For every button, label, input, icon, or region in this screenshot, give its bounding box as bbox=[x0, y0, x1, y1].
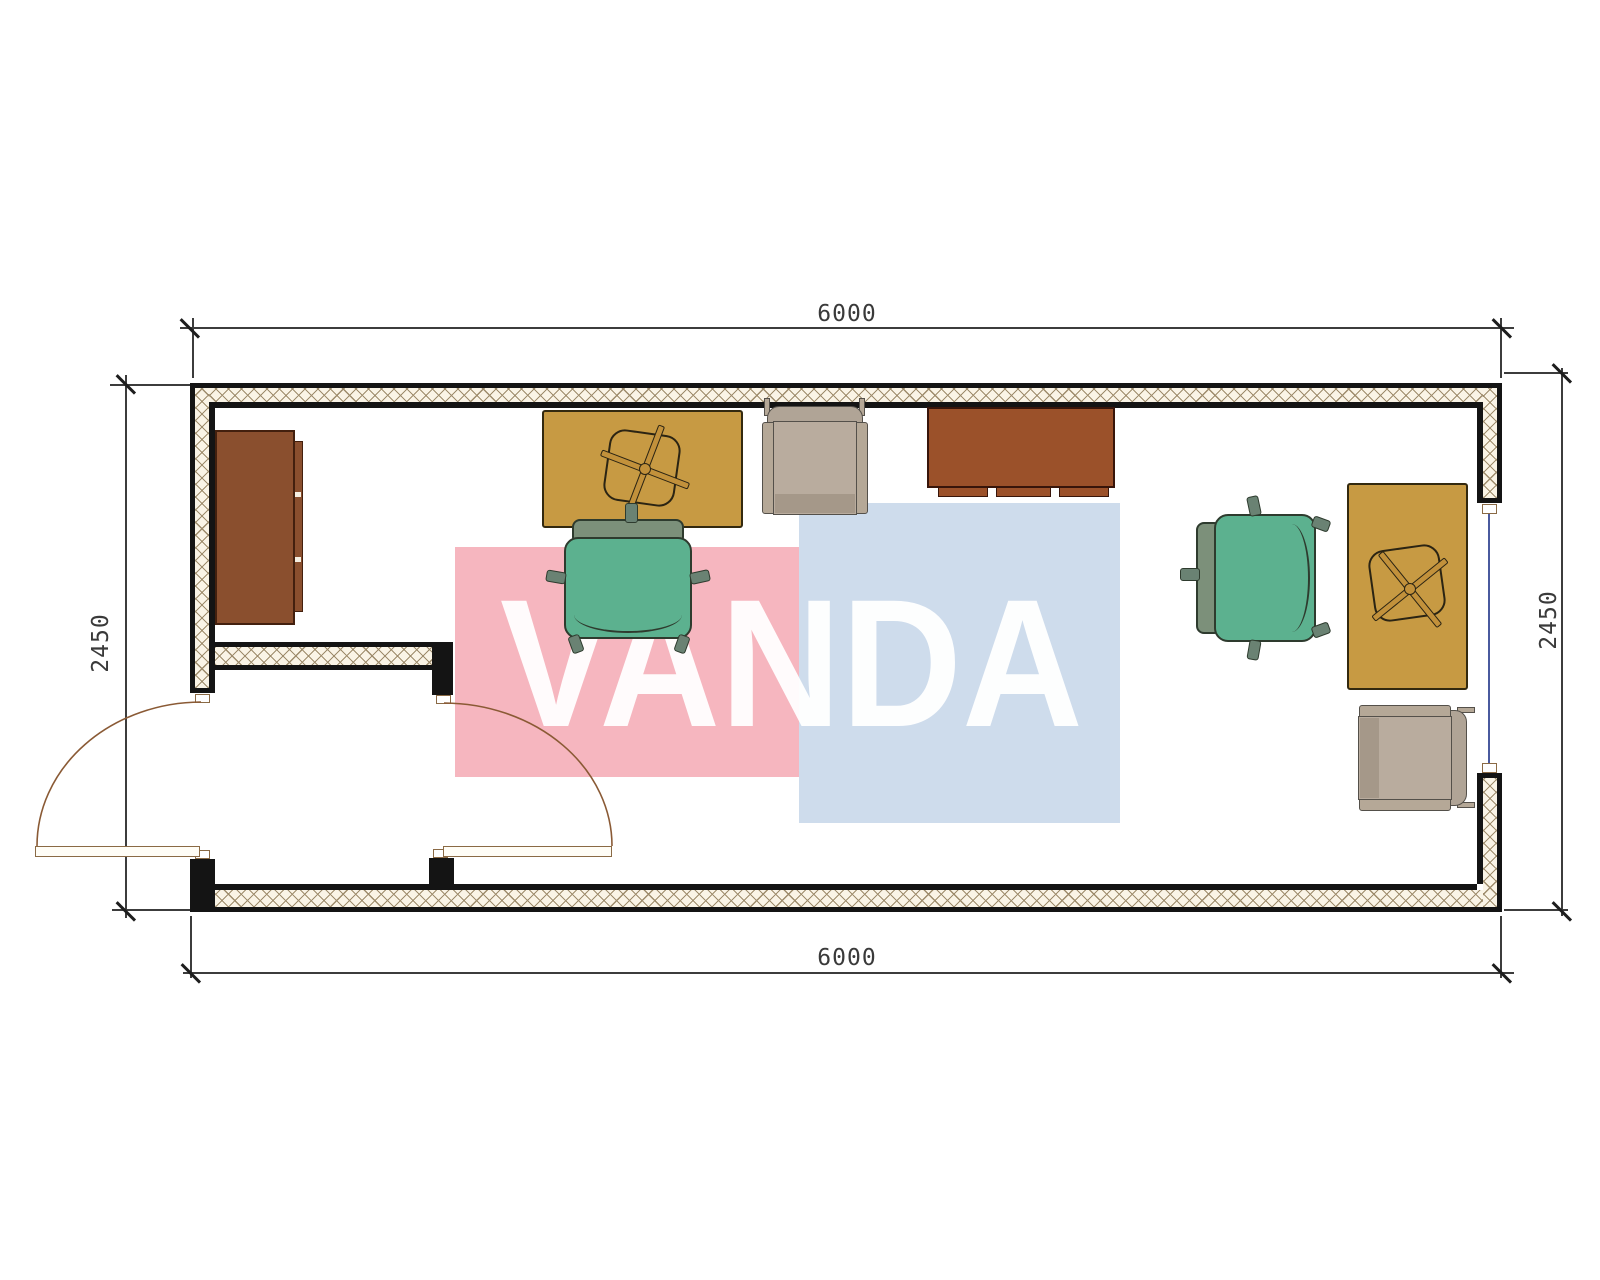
guest-chair-right bbox=[1355, 705, 1467, 811]
dim-ext-bottom-left bbox=[190, 916, 192, 978]
wall-top-hatch bbox=[190, 388, 1502, 402]
guest-chair-left bbox=[762, 406, 868, 518]
vestibule-wall-top-line bbox=[215, 642, 453, 647]
wall-right-inner-line-upper bbox=[1477, 402, 1483, 498]
dim-line-top bbox=[180, 327, 1514, 329]
vestibule-wall-bottom-line bbox=[215, 665, 432, 670]
wall-bottom-outer-line bbox=[190, 907, 1502, 912]
wall-left-outer-line bbox=[190, 383, 195, 692]
door-jamb-left-top bbox=[195, 694, 210, 703]
window-sill-bottom bbox=[1482, 763, 1497, 773]
wall-right-inner-line-lower bbox=[1477, 778, 1483, 884]
office-chair-left bbox=[562, 521, 694, 673]
wall-right-end-upper bbox=[1477, 498, 1502, 503]
dim-line-bottom bbox=[183, 972, 1514, 974]
dim-ext-bottom-right bbox=[1500, 916, 1502, 978]
wall-left-end-cap bbox=[190, 688, 215, 693]
interior-door-leaf bbox=[443, 846, 612, 857]
wall-right-outer-line-upper bbox=[1497, 383, 1502, 498]
sideboard-handle bbox=[295, 557, 301, 562]
wall-top-outer-line bbox=[190, 383, 1502, 388]
office-chair-right bbox=[1198, 512, 1350, 644]
floor-plan-canvas: VANDA 6000 6000 bbox=[0, 0, 1600, 1280]
credenza-foot bbox=[996, 487, 1051, 497]
wall-bottom-inner-line bbox=[215, 884, 1477, 890]
dim-label-top: 6000 bbox=[797, 302, 897, 326]
desk-right bbox=[1347, 483, 1468, 690]
wall-left-hatch bbox=[195, 388, 209, 688]
dim-line-left bbox=[125, 375, 127, 918]
desk-left bbox=[542, 410, 743, 528]
sideboard-handle bbox=[295, 492, 301, 497]
dim-label-right: 2450 bbox=[1537, 570, 1561, 670]
dim-label-left: 2450 bbox=[89, 593, 113, 693]
sideboard-front-strip bbox=[294, 441, 303, 612]
vestibule-wall-end-post bbox=[432, 647, 453, 695]
dim-ext-top-left bbox=[192, 318, 194, 378]
exterior-door-leaf bbox=[35, 846, 200, 857]
wall-bottom-hatch bbox=[215, 890, 1502, 907]
wall-right-hatch-upper bbox=[1483, 388, 1497, 498]
window-sill-top bbox=[1482, 504, 1497, 514]
credenza-foot bbox=[1059, 487, 1109, 497]
door-stub-left bbox=[190, 859, 215, 907]
door-jamb-right-top bbox=[436, 695, 451, 704]
dim-label-bottom: 6000 bbox=[797, 946, 897, 970]
wall-right-hatch-lower bbox=[1483, 778, 1497, 907]
credenza-foot bbox=[938, 487, 988, 497]
window-glazing-line bbox=[1488, 514, 1490, 763]
vestibule-wall-hatch bbox=[215, 647, 453, 665]
sideboard-cabinet bbox=[215, 430, 295, 625]
dim-ext-left-top bbox=[110, 384, 190, 386]
wall-right-outer-line-lower bbox=[1497, 778, 1502, 912]
door-stub-right bbox=[429, 858, 454, 890]
credenza bbox=[927, 407, 1115, 488]
